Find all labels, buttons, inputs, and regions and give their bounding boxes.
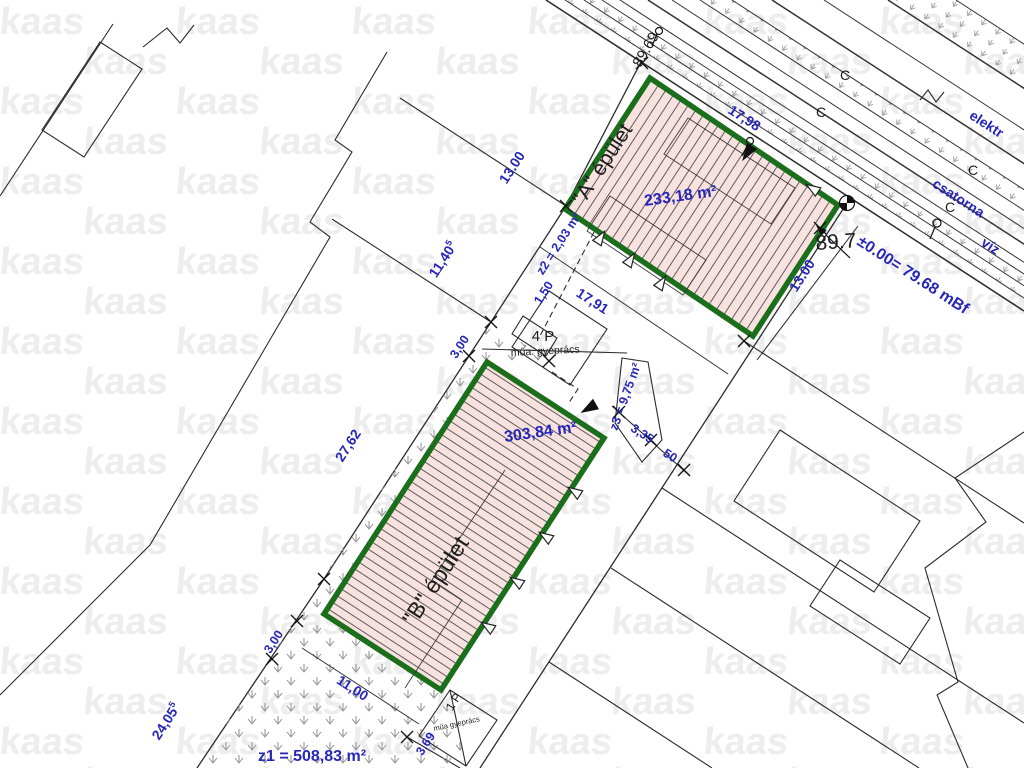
sewer-c-mark: C — [968, 162, 978, 178]
site-plan-canvas: kaas kaas — [0, 0, 1024, 768]
benchmark-symbol — [840, 196, 855, 211]
area-z1: z1 = 508,83 m² — [258, 748, 366, 765]
sewer-c-mark: C — [816, 104, 826, 120]
corner-elevation-89.7: 89.7 — [815, 229, 857, 255]
site-plan-drawing: kaas kaas — [0, 0, 1024, 768]
sewer-c-mark: C — [840, 67, 850, 83]
sewer-c-mark: C — [945, 199, 955, 215]
parking-4p-label: 4 P — [532, 328, 555, 345]
